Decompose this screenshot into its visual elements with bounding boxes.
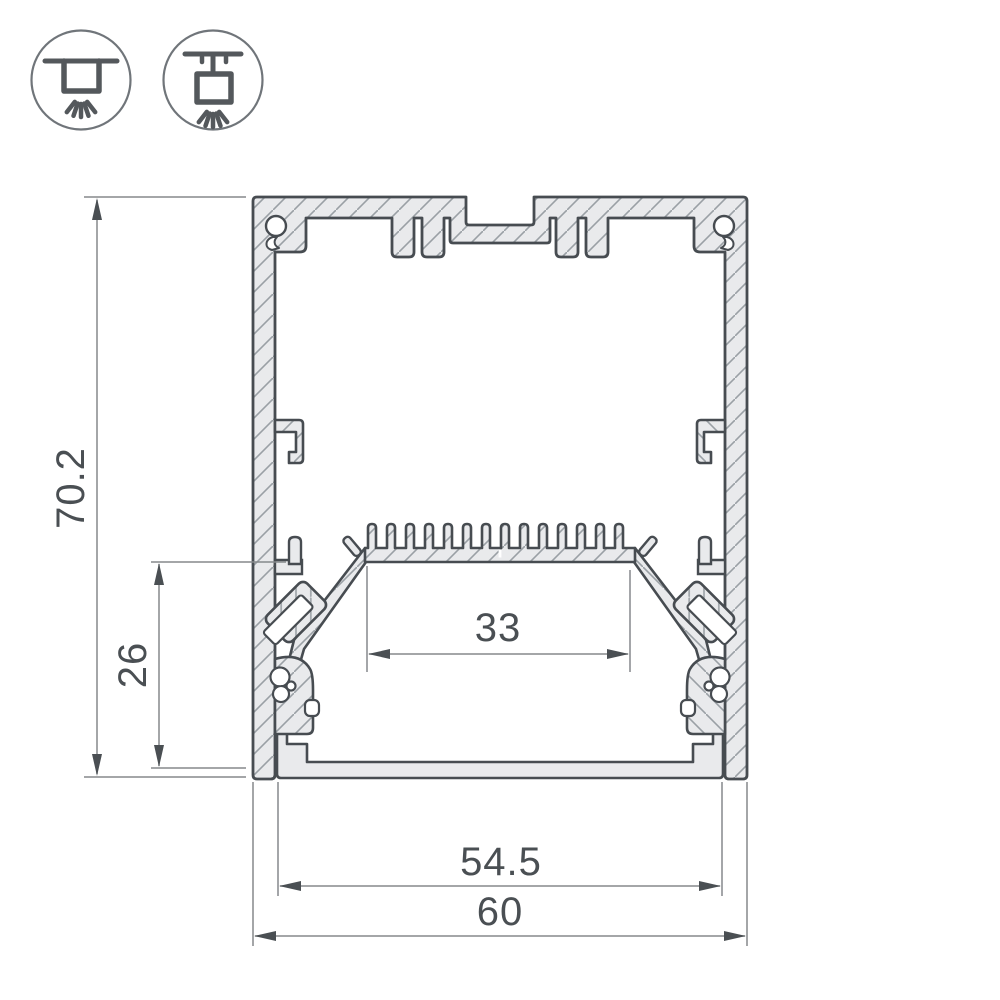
dim-label-overall-width: 60 bbox=[477, 890, 524, 934]
dim-label-inner-width: 54.5 bbox=[460, 840, 542, 884]
dim-label-shelf-width: 33 bbox=[475, 606, 522, 650]
shelf-center-notch bbox=[499, 550, 502, 558]
profile-body bbox=[253, 197, 747, 779]
arrow-right bbox=[724, 931, 746, 941]
profile-drawing-canvas: 70.2 26 33 54.5 60 bbox=[0, 0, 1000, 1000]
arrow-down bbox=[154, 745, 164, 767]
surface-mount-icon bbox=[32, 31, 131, 130]
dim-label-height: 70.2 bbox=[49, 447, 93, 529]
arrow-right bbox=[607, 649, 629, 659]
drawing-page: 70.2 26 33 54.5 60 bbox=[0, 0, 1000, 1000]
dim-label-inner-depth: 26 bbox=[111, 642, 155, 689]
arrow-left bbox=[254, 931, 276, 941]
outer-shell bbox=[253, 197, 747, 779]
arrow-up bbox=[92, 198, 102, 220]
arrow-down bbox=[92, 754, 102, 776]
arrow-up bbox=[154, 563, 164, 585]
mounting-icons bbox=[32, 31, 263, 130]
pendant-mount-icon bbox=[164, 31, 263, 130]
arrow-left bbox=[279, 881, 301, 891]
arrow-right bbox=[699, 881, 721, 891]
arrow-left bbox=[368, 649, 390, 659]
diffuser-tray bbox=[277, 730, 723, 778]
profile-box bbox=[197, 74, 231, 102]
